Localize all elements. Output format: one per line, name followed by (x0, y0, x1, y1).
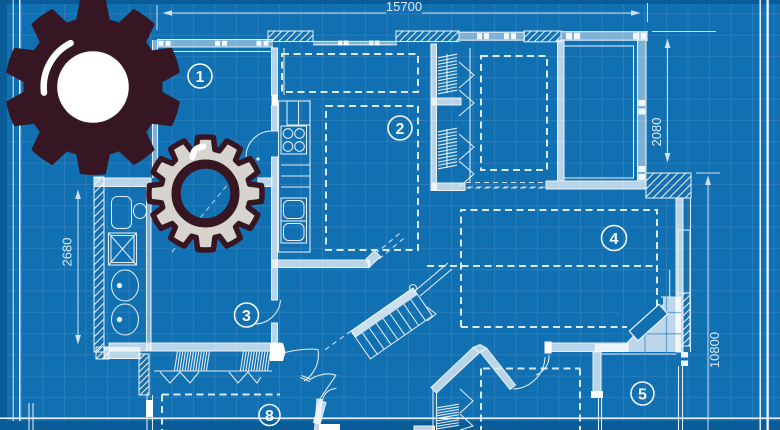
svg-text:3: 3 (242, 308, 251, 325)
svg-text:10800: 10800 (707, 332, 722, 368)
svg-text:2680: 2680 (60, 238, 75, 267)
svg-text:8: 8 (265, 408, 274, 425)
svg-text:2080: 2080 (649, 118, 664, 147)
svg-text:1: 1 (196, 69, 205, 86)
svg-text:2: 2 (396, 121, 405, 138)
svg-text:15700: 15700 (386, 0, 422, 14)
svg-text:4: 4 (610, 231, 619, 248)
svg-text:5: 5 (638, 387, 647, 404)
